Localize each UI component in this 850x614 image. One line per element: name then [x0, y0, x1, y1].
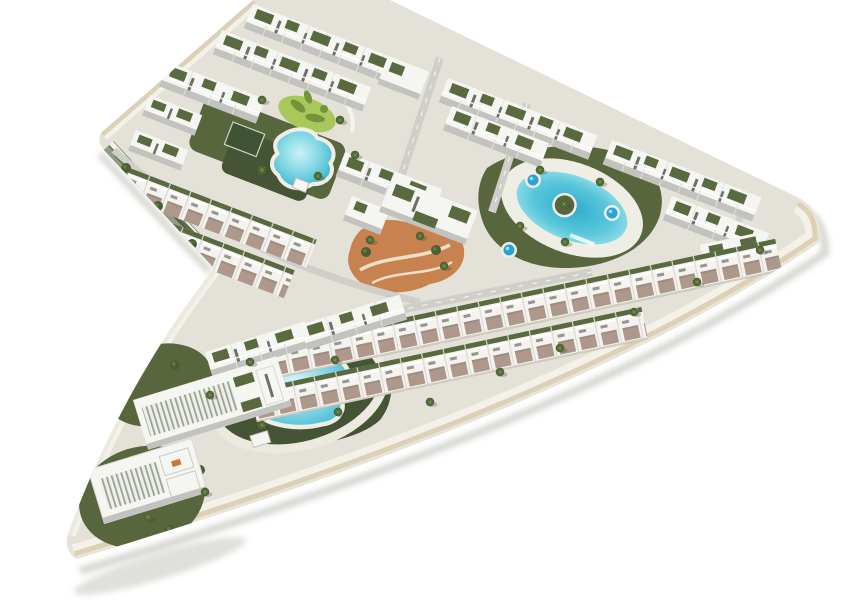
- site-plan-svg: [0, 0, 850, 614]
- spa-pool: [501, 242, 517, 258]
- bush: [431, 245, 441, 255]
- bush: [361, 247, 371, 257]
- spa-pool: [604, 205, 620, 221]
- spa-pool: [525, 172, 541, 188]
- render-canvas: [0, 0, 850, 614]
